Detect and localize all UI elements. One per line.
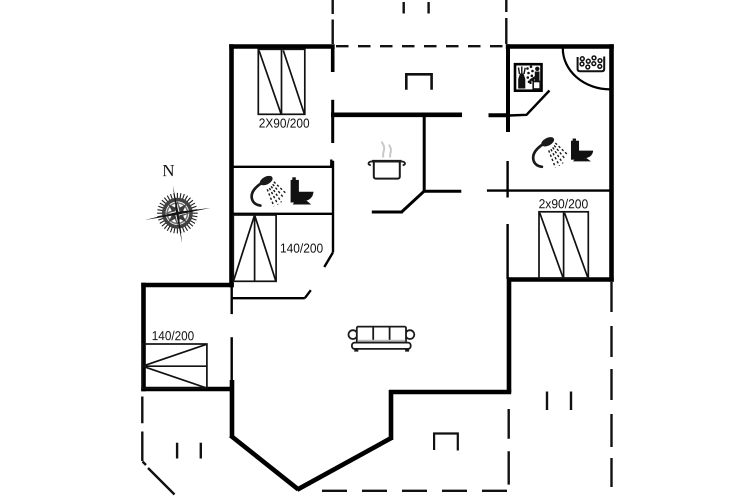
svg-text:N: N <box>162 161 174 180</box>
svg-text:2x90/200: 2x90/200 <box>539 196 589 211</box>
svg-text:2X90/200: 2X90/200 <box>259 116 310 131</box>
svg-text:140/200: 140/200 <box>280 241 323 256</box>
svg-text:140/200: 140/200 <box>152 328 194 343</box>
